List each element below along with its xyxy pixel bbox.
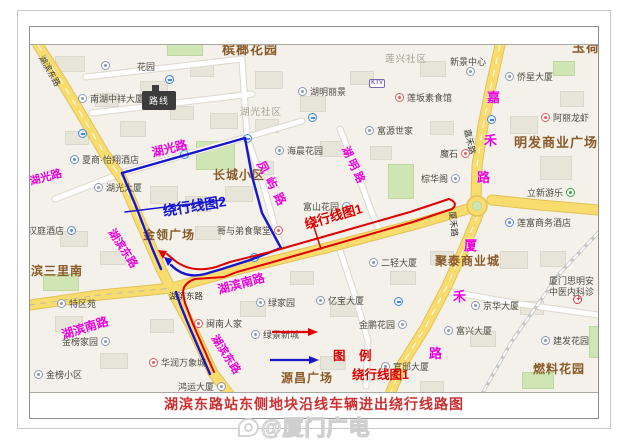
road-name-label: 嘉 xyxy=(487,91,500,104)
legend-arrows xyxy=(270,328,319,364)
route2-south-leg xyxy=(176,292,210,374)
weibo-icon xyxy=(238,418,259,437)
legend-arrow-route2 xyxy=(270,356,319,364)
page: { "frame": { "caption": "湖滨东路站东侧地块沿线车辆进出… xyxy=(0,0,625,442)
road-name-label: 路 xyxy=(429,347,442,360)
watermark-text: @厦门广电 xyxy=(261,412,370,442)
road-name-label: 禾 xyxy=(484,134,497,147)
road-name-label: 路 xyxy=(477,171,490,184)
map-canvas[interactable]: 路线 图 例 绕行线图1 绕行线图2 槟榔花园玉荷明发商业广场长城小区金领广场滨… xyxy=(30,44,598,393)
road-name-label: 厦 xyxy=(464,239,477,252)
route-tooltip[interactable]: 路线 xyxy=(142,91,176,110)
road-name-label: 禾 xyxy=(453,290,466,303)
legend-arrow-route1 xyxy=(272,328,318,336)
figure-caption: 湖滨东路站东侧地块沿线车辆进出绕行线路图 xyxy=(164,398,464,413)
legend-title: 图 例 xyxy=(333,350,376,363)
legend-item-route1: 绕行线图1 xyxy=(352,369,409,382)
route1-cap xyxy=(449,199,455,209)
watermark: @厦门广电 xyxy=(238,412,370,442)
